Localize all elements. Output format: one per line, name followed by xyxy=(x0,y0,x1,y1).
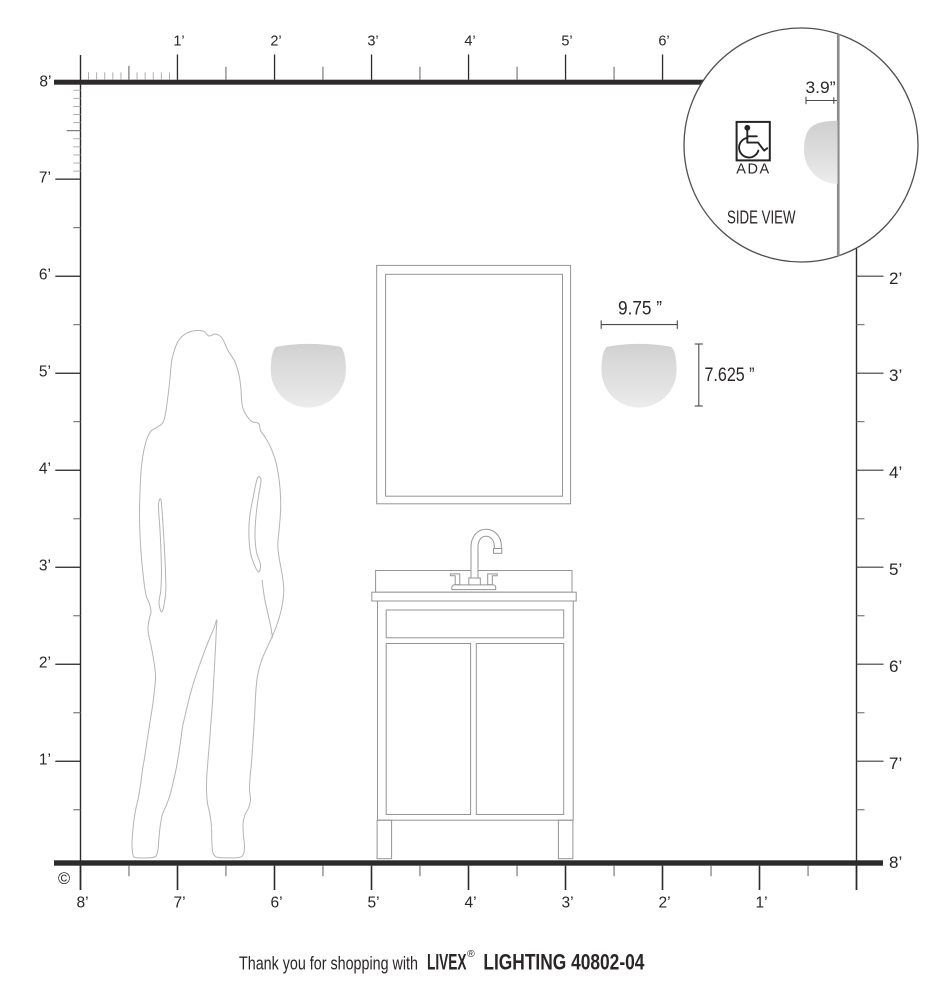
svg-text:6’: 6’ xyxy=(270,895,282,912)
svg-text:ADA: ADA xyxy=(736,162,771,178)
svg-text:©: © xyxy=(58,870,70,888)
svg-text:LIGHTING 40802-04: LIGHTING 40802-04 xyxy=(483,950,644,975)
svg-text:3’: 3’ xyxy=(561,895,573,912)
svg-text:6’: 6’ xyxy=(658,33,669,49)
svg-text:6’: 6’ xyxy=(39,267,51,284)
svg-text:7’: 7’ xyxy=(889,754,902,773)
svg-text:9.75 ”: 9.75 ” xyxy=(618,298,662,320)
svg-text:®: ® xyxy=(467,948,475,960)
svg-text:6’: 6’ xyxy=(889,657,902,676)
svg-text:5’: 5’ xyxy=(367,895,379,912)
svg-text:3’: 3’ xyxy=(39,558,51,575)
svg-text:2’: 2’ xyxy=(39,655,51,672)
svg-text:LIVEX: LIVEX xyxy=(427,950,467,975)
svg-text:1’: 1’ xyxy=(39,752,51,769)
svg-text:2’: 2’ xyxy=(270,33,281,49)
svg-text:3.9”: 3.9” xyxy=(806,78,836,97)
svg-text:5’: 5’ xyxy=(39,364,51,381)
svg-text:8’: 8’ xyxy=(39,73,51,90)
svg-text:1’: 1’ xyxy=(755,895,767,912)
svg-text:5’: 5’ xyxy=(561,33,572,49)
svg-text:7’: 7’ xyxy=(173,895,185,912)
svg-text:1’: 1’ xyxy=(173,33,184,49)
svg-text:4’: 4’ xyxy=(39,461,51,478)
svg-text:5’: 5’ xyxy=(889,560,902,579)
svg-text:4’: 4’ xyxy=(889,463,902,482)
svg-text:SIDE VIEW: SIDE VIEW xyxy=(727,207,796,228)
svg-text:8’: 8’ xyxy=(76,895,88,912)
svg-text:4’: 4’ xyxy=(464,33,475,49)
svg-text:Thank you for shopping with: Thank you for shopping with xyxy=(239,953,418,974)
svg-text:3’: 3’ xyxy=(889,366,902,385)
svg-text:2’: 2’ xyxy=(658,895,670,912)
svg-text:8’: 8’ xyxy=(889,853,902,872)
svg-text:7.625 ”: 7.625 ” xyxy=(705,364,755,386)
svg-text:2’: 2’ xyxy=(889,269,902,288)
svg-text:7’: 7’ xyxy=(39,170,51,187)
svg-text:3’: 3’ xyxy=(367,33,378,49)
svg-text:4’: 4’ xyxy=(464,895,476,912)
